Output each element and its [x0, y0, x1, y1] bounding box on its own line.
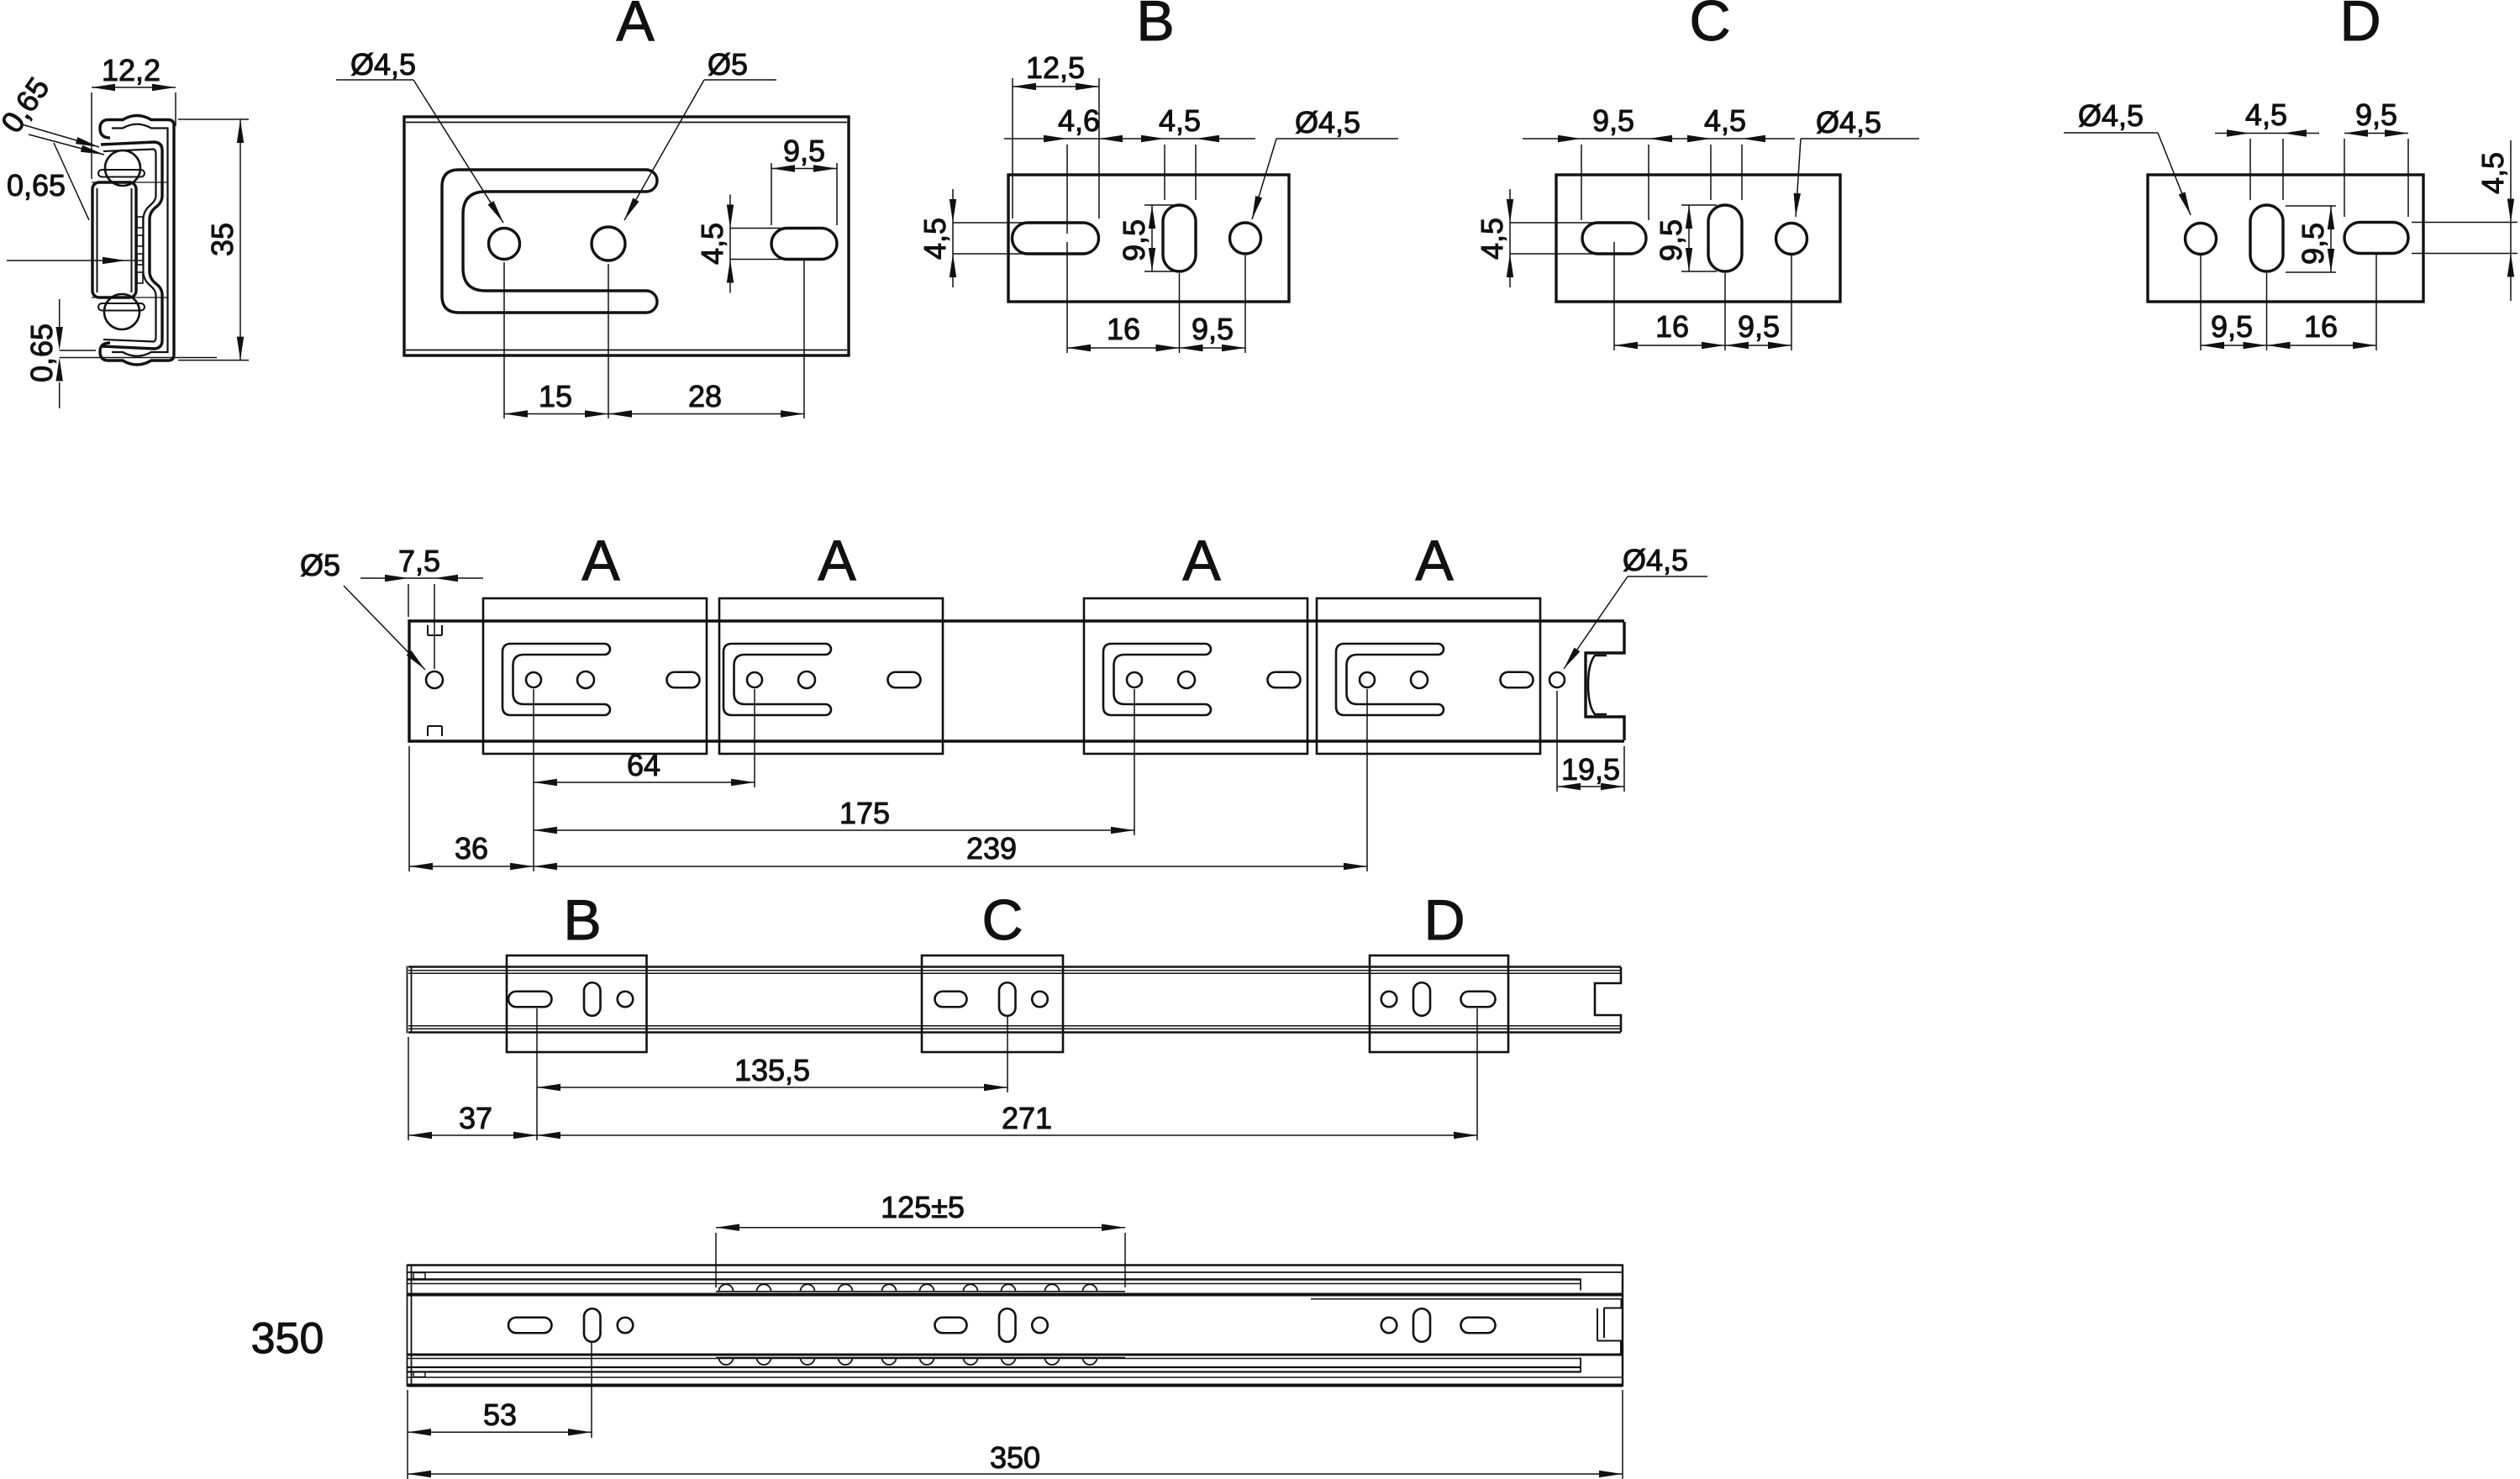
svg-text:350: 350: [990, 1440, 1040, 1475]
svg-text:D: D: [1423, 888, 1465, 952]
svg-text:D: D: [2339, 0, 2381, 53]
svg-text:9,5: 9,5: [783, 134, 825, 168]
svg-text:12,2: 12,2: [102, 53, 160, 87]
svg-text:4,6: 4,6: [1058, 103, 1100, 138]
svg-text:0,65: 0,65: [0, 71, 56, 139]
svg-text:175: 175: [839, 796, 890, 830]
svg-text:A: A: [1182, 529, 1221, 592]
svg-text:125±5: 125±5: [881, 1190, 965, 1224]
svg-text:Ø4,5: Ø4,5: [350, 47, 416, 82]
svg-text:A: A: [616, 0, 655, 53]
svg-text:Ø5: Ø5: [708, 47, 748, 82]
svg-text:36: 36: [455, 831, 488, 866]
svg-text:Ø4,5: Ø4,5: [1623, 543, 1688, 577]
svg-text:239: 239: [966, 831, 1017, 866]
svg-text:C: C: [1689, 0, 1730, 53]
svg-text:64: 64: [627, 748, 660, 782]
svg-text:0,65: 0,65: [7, 168, 66, 203]
svg-text:4,5: 4,5: [1704, 103, 1746, 138]
svg-text:4,5: 4,5: [1475, 218, 1509, 260]
svg-text:B: B: [1136, 0, 1174, 53]
svg-text:A: A: [818, 529, 856, 592]
svg-text:28: 28: [688, 379, 722, 413]
svg-text:4,5: 4,5: [2475, 152, 2510, 194]
svg-text:53: 53: [483, 1397, 517, 1432]
svg-text:9,5: 9,5: [1738, 309, 1780, 344]
svg-text:9,5: 9,5: [1592, 103, 1634, 138]
svg-text:9,5: 9,5: [2355, 97, 2397, 132]
svg-text:135,5: 135,5: [734, 1053, 810, 1087]
svg-text:350: 350: [251, 1314, 324, 1363]
svg-text:0,65: 0,65: [24, 324, 59, 382]
svg-text:9,5: 9,5: [1654, 219, 1688, 261]
svg-text:16: 16: [1107, 312, 1140, 346]
svg-text:12,5: 12,5: [1026, 50, 1085, 85]
svg-text:37: 37: [459, 1101, 492, 1135]
svg-text:9,5: 9,5: [1192, 312, 1234, 346]
svg-text:19,5: 19,5: [1561, 752, 1620, 787]
svg-text:B: B: [563, 888, 601, 952]
svg-text:7,5: 7,5: [398, 544, 440, 578]
svg-text:4,5: 4,5: [695, 223, 729, 265]
svg-text:35: 35: [205, 223, 239, 256]
svg-text:16: 16: [2304, 309, 2338, 344]
svg-text:4,5: 4,5: [1159, 103, 1201, 138]
svg-text:9,5: 9,5: [2211, 309, 2253, 344]
svg-text:4,5: 4,5: [2245, 97, 2287, 132]
svg-text:Ø4,5: Ø4,5: [2078, 98, 2144, 133]
svg-text:Ø4,5: Ø4,5: [1295, 105, 1360, 139]
svg-text:A: A: [1415, 529, 1454, 592]
svg-text:15: 15: [539, 379, 572, 413]
svg-text:Ø4,5: Ø4,5: [1816, 105, 1881, 139]
svg-text:Ø5: Ø5: [300, 548, 340, 582]
svg-text:16: 16: [1655, 309, 1689, 344]
svg-text:A: A: [581, 529, 620, 592]
svg-text:4,5: 4,5: [918, 218, 952, 260]
svg-text:C: C: [981, 888, 1023, 952]
svg-text:9,5: 9,5: [1117, 219, 1151, 261]
svg-text:9,5: 9,5: [2296, 223, 2330, 265]
svg-text:271: 271: [1002, 1101, 1052, 1135]
